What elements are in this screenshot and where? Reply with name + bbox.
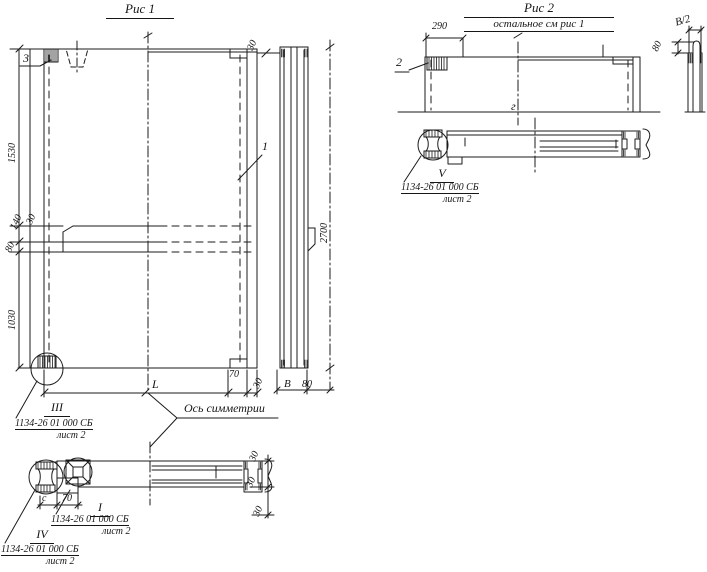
fig1-section-dim-c: с [42,494,46,504]
fig1-side-view-column [280,47,315,368]
fig2-width-dimension-290 [423,33,466,57]
fig2-embedded-plate [427,57,447,70]
fig1-detail-iii-numeral: III [44,400,70,417]
fig1-height-dimension-2700 [326,40,334,390]
fig1-symmetry-caption: Ось симметрии [184,402,265,414]
fig1-top-gap-dimension [257,49,280,57]
fig1-dim-2700: 2700 [320,223,330,243]
fig1-detail-iv-sheet: лист 2 [46,556,75,567]
fig1-dim-1530: 1530 [8,143,18,163]
fig1-detail-iv-ref: 1134-26 01 000 СБ [1,544,79,556]
fig1-mid-beam [44,226,255,252]
fig1-section-view [57,442,272,505]
fig1-dim-70: 70 [229,370,239,380]
fig1-detail-iii-ref: 1134-26 01 000 СБ [15,418,93,430]
fig1-detail-i-sheet: лист 2 [102,526,131,537]
fig2-detail-v-ref: 1134-26 01 000 СБ [401,182,479,194]
fig2-detail-v-numeral: V [430,166,454,183]
fig1-dim-80-bottom: 80 [302,380,312,390]
fig1-detail-iii-sheet: лист 2 [57,430,86,441]
fig2-detail-v-sheet: лист 2 [443,194,472,205]
fig1-detail-iv-numeral: IV [30,527,54,544]
fig1-anchor-trapezoid [66,41,88,73]
fig1-title: Рис 1 [106,1,174,19]
fig1-symmetry-axis [144,32,152,393]
fig1-dim-L: L [152,378,159,390]
fig2-section-view [447,118,650,172]
fig2-subtitle: остальное см рис 1 [464,18,614,32]
fig1-part1-label: 1 [262,140,268,152]
fig1-part1-leader [238,155,262,180]
fig2-dim-290: 290 [432,22,447,32]
fig2-axis-mark: г [511,100,516,112]
fig1-detail-i-ref: 1134-26 01 000 СБ [51,514,129,526]
fig2-edge-section [672,26,705,112]
fig1-dim-B: В [284,379,291,390]
fig2-panel-front-view [398,33,660,125]
fig2-title: Рис 2 [464,0,614,18]
fig2-part2-label: 2 [396,56,402,68]
fig1-section-square-detail [56,458,92,514]
fig1-part3-label: 3 [23,52,29,64]
fig1-panel-front-view [10,49,257,368]
engineering-drawing-sheet: Рис 1 Рис 2 остальное см рис 1 3 1 1530 … [0,0,707,572]
fig2-title-block: Рис 2 остальное см рис 1 [464,0,614,32]
drawing-linework [0,0,707,572]
fig1-section-dim-70: 70 [62,494,72,504]
fig1-dim-1030: 1030 [8,310,18,330]
